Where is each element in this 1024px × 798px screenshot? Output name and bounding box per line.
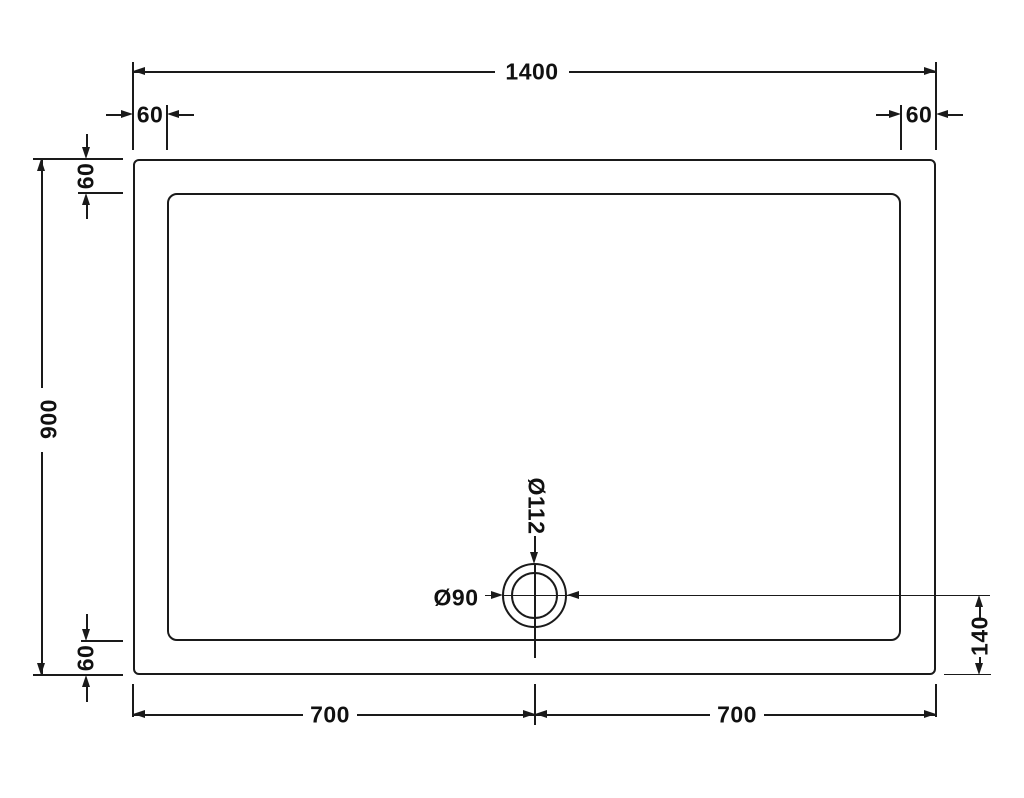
- arrowhead-down-icon: [530, 552, 538, 564]
- arrowhead-down-icon: [82, 629, 90, 641]
- drain-centerline-vertical: [534, 564, 536, 658]
- arrowhead-down-icon: [37, 663, 45, 675]
- arrowhead-left-icon: [167, 110, 179, 118]
- arrowhead-left-icon: [133, 710, 145, 718]
- shower-tray-technical-drawing: Ø112 Ø90 1400 60 60 900 60 60: [0, 0, 1024, 798]
- arrowhead-left-icon: [133, 67, 145, 75]
- arrowhead-right-icon: [491, 591, 503, 599]
- dim-rim-bottom-left-label: 60: [75, 644, 98, 671]
- dimension-line: [569, 71, 936, 73]
- arrowhead-up-icon: [37, 159, 45, 171]
- dim-rim-top-left-label: 60: [137, 103, 164, 126]
- arrowhead-right-icon: [924, 710, 936, 718]
- arrowhead-up-icon: [975, 595, 983, 607]
- arrowhead-up-icon: [82, 675, 90, 687]
- dim-overall-height-label: 900: [38, 399, 61, 439]
- arrowhead-left-icon: [936, 110, 948, 118]
- dimension-line: [106, 114, 121, 116]
- dim-overall-width-label: 1400: [505, 60, 558, 83]
- extension-line: [33, 674, 123, 676]
- arrowhead-up-icon: [82, 193, 90, 205]
- dim-bottom-span-left-label: 700: [310, 703, 350, 726]
- dimension-line: [41, 159, 43, 388]
- arrowhead-right-icon: [523, 710, 535, 718]
- dim-rim-top-right-label: 60: [906, 103, 933, 126]
- dim-waste-inner-diameter-label: Ø90: [434, 587, 479, 610]
- dimension-line: [86, 614, 88, 630]
- dim-waste-outer-diameter-label: Ø112: [525, 478, 548, 535]
- arrowhead-down-icon: [82, 147, 90, 159]
- extension-line: [944, 674, 991, 676]
- dimension-line: [764, 714, 936, 716]
- dimension-line: [41, 452, 43, 675]
- arrowhead-left-icon: [535, 710, 547, 718]
- arrowhead-right-icon: [889, 110, 901, 118]
- dim-bottom-span-right-label: 700: [717, 703, 757, 726]
- dimension-line: [133, 714, 303, 716]
- dimension-line: [133, 71, 495, 73]
- waste-dia-leader-line: [534, 536, 536, 552]
- dim-rim-left-top-label: 60: [75, 162, 98, 189]
- dimension-line: [86, 205, 88, 219]
- arrowhead-down-icon: [975, 663, 983, 675]
- dimension-line: [86, 687, 88, 702]
- extension-line: [534, 684, 536, 725]
- arrowhead-left-icon: [567, 591, 579, 599]
- extension-line: [33, 158, 123, 160]
- dimension-line: [179, 114, 194, 116]
- arrowhead-right-icon: [924, 67, 936, 75]
- dim-drain-offset-label: 140: [969, 616, 992, 656]
- dimension-line: [876, 114, 889, 116]
- dimension-line: [948, 114, 963, 116]
- arrowhead-right-icon: [121, 110, 133, 118]
